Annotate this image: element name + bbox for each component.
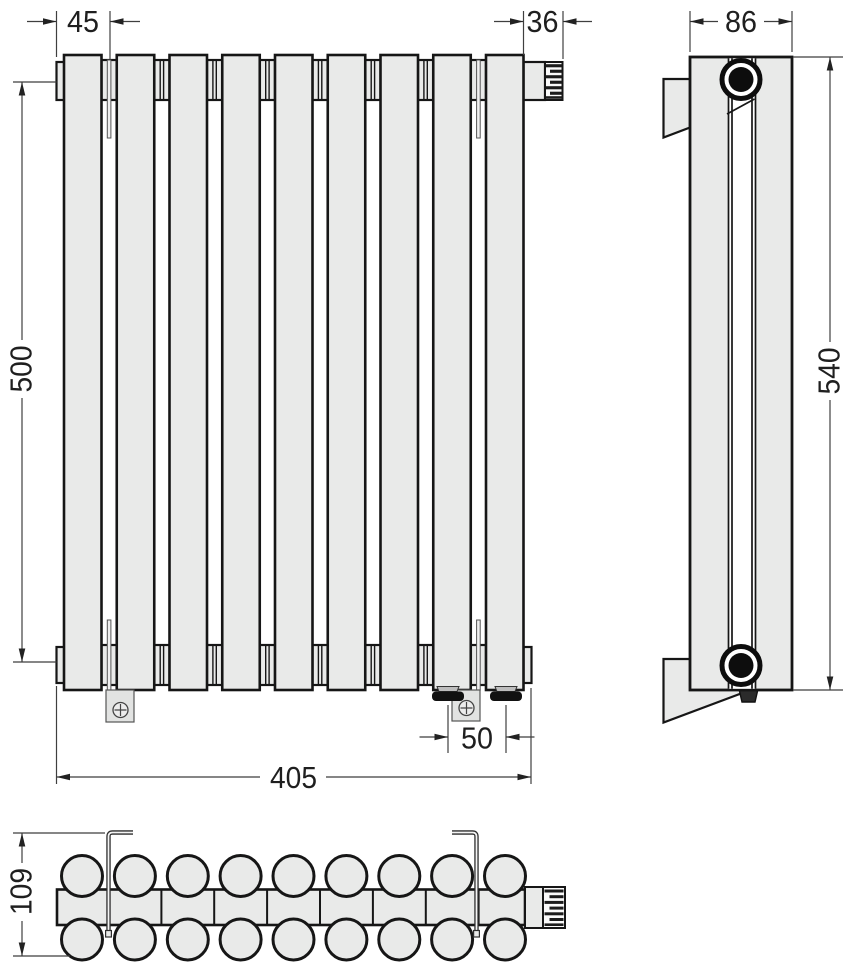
radiator-panel [275, 55, 313, 690]
section-connector [365, 60, 380, 100]
radiator-panel [381, 55, 419, 690]
bracket-rod [107, 620, 111, 690]
bracket-rod [477, 60, 481, 138]
tube-circle [220, 856, 261, 897]
drawing-svg: 45 36 86 500 [0, 0, 852, 970]
wire-foot [106, 931, 112, 938]
radiator-panel [328, 55, 366, 690]
section-connector [154, 645, 169, 685]
section-connector [365, 645, 380, 685]
radiator-panel [117, 55, 155, 690]
tube-circle [167, 856, 208, 897]
valve-connection [490, 692, 522, 702]
tube-circle [326, 856, 367, 897]
section-connector [313, 645, 328, 685]
radiator-panel [486, 55, 524, 690]
tube-circle [114, 856, 155, 897]
valve-connection [432, 692, 464, 702]
dim-109-label: 109 [4, 868, 39, 915]
dim-540: 540 [794, 57, 847, 690]
tube-circle [379, 856, 420, 897]
tube-circle [62, 919, 103, 960]
tube-circle [432, 856, 473, 897]
dim-50-label: 50 [461, 721, 493, 756]
screw-icon [459, 701, 474, 716]
air-vent-fitting [524, 62, 563, 100]
bracket-plates [106, 690, 480, 722]
pipe-connection-bottom [722, 647, 760, 685]
dim-86-label: 86 [725, 4, 757, 39]
screw-icon [113, 703, 128, 718]
top-view [57, 833, 565, 961]
valve-neck [495, 687, 517, 692]
fitting-body [524, 62, 546, 100]
bracket-rod [477, 620, 481, 690]
bracket-rod [107, 60, 111, 138]
front-view [57, 55, 563, 722]
tube-circle [379, 919, 420, 960]
side-view [664, 57, 793, 723]
pipe-connection-top [722, 61, 760, 99]
section-connector [260, 60, 275, 100]
tube-circle [62, 856, 103, 897]
wire-foot [474, 931, 480, 938]
tube-circle [326, 919, 367, 960]
dim-36-label: 36 [527, 4, 559, 39]
tube-circle [485, 856, 526, 897]
section-connector [313, 60, 328, 100]
dim-86: 86 [690, 4, 792, 52]
dim-36: 36 [494, 4, 592, 59]
radiator-technical-drawing: 45 36 86 500 [0, 0, 852, 970]
dim-45-label: 45 [67, 4, 99, 39]
dim-540-label: 540 [812, 348, 847, 395]
section-connector [207, 60, 222, 100]
tube-circle [114, 919, 155, 960]
tube-circle [273, 919, 314, 960]
tube-circle [485, 919, 526, 960]
radiator-panel [433, 55, 471, 690]
tube-circle [432, 919, 473, 960]
radiator-panel [222, 55, 260, 690]
fitting-body [525, 887, 543, 928]
dim-405-label: 405 [270, 760, 317, 795]
tube-row-bottom [62, 919, 526, 960]
section-connector [418, 60, 433, 100]
radiator-sections [64, 55, 524, 690]
mounting-bracket-top [664, 79, 691, 138]
dim-45: 45 [27, 4, 140, 59]
tube-circle [167, 919, 208, 960]
tube-row-top [62, 856, 526, 897]
section-connector [207, 645, 222, 685]
section-connector [418, 645, 433, 685]
radiator-panel [64, 55, 102, 690]
valve-neck [437, 687, 459, 692]
plan-air-vent-fitting [525, 887, 565, 928]
dim-500: 500 [4, 82, 57, 662]
tube-circle [273, 856, 314, 897]
dim-500-label: 500 [4, 346, 39, 393]
section-connector [260, 645, 275, 685]
section-connector [154, 60, 169, 100]
radiator-panel [170, 55, 208, 690]
tube-circle [220, 919, 261, 960]
